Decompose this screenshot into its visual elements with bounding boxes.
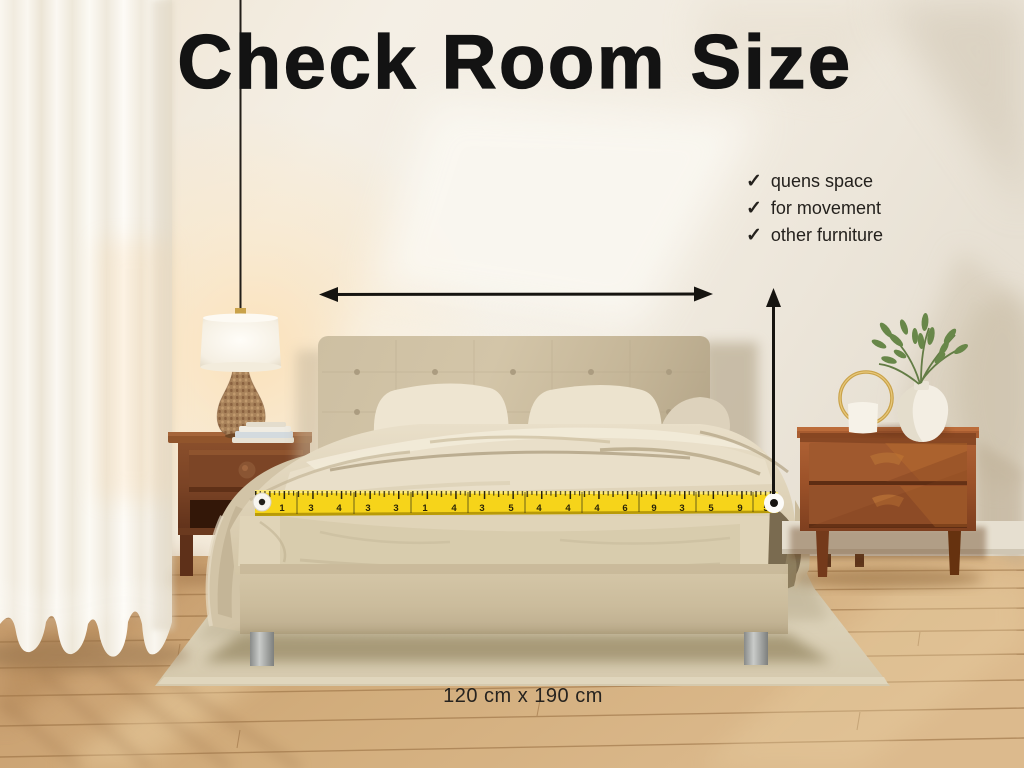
svg-text:4: 4 — [336, 503, 342, 514]
svg-text:4: 4 — [536, 503, 542, 514]
svg-text:3: 3 — [365, 503, 370, 514]
svg-text:1: 1 — [279, 503, 285, 514]
svg-text:3: 3 — [393, 503, 398, 514]
svg-text:9: 9 — [651, 503, 656, 514]
svg-text:6: 6 — [622, 503, 627, 514]
svg-text:4: 4 — [594, 503, 600, 514]
svg-text:3: 3 — [679, 503, 684, 514]
svg-text:9: 9 — [737, 503, 742, 514]
svg-text:5: 5 — [508, 503, 514, 514]
svg-text:4: 4 — [565, 503, 571, 514]
svg-text:3: 3 — [479, 503, 484, 514]
svg-text:3: 3 — [308, 503, 313, 514]
svg-text:1: 1 — [422, 503, 428, 514]
svg-text:5: 5 — [708, 503, 714, 514]
svg-text:4: 4 — [451, 503, 457, 514]
